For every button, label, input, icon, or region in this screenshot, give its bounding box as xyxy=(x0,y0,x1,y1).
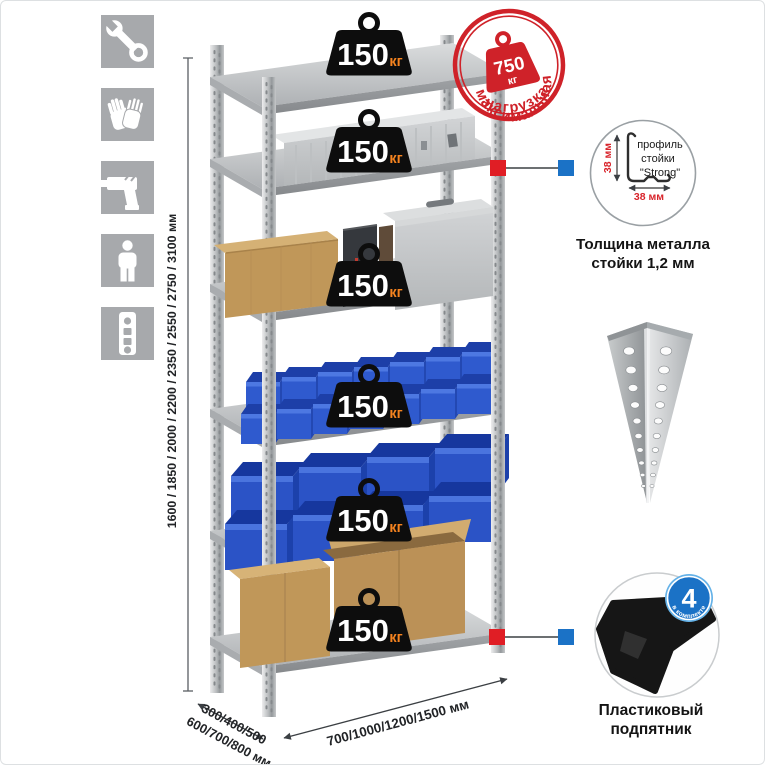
wrench-icon xyxy=(99,13,154,68)
height-dimension-label: 1600 / 1850 / 2000 / 2200 / 2350 / 2550 … xyxy=(165,214,179,529)
foot-caption-1: Пластиковый xyxy=(599,702,704,719)
person-icon xyxy=(101,234,154,287)
callout-marker-red-top xyxy=(490,160,506,176)
foot-caption-2: подпятник xyxy=(610,721,691,738)
width-dimension: 700/1000/1200/1500 мм xyxy=(284,679,507,749)
profile-callout xyxy=(490,160,574,176)
load-badge-1 xyxy=(326,15,412,76)
plastic-foot-detail: 4 в комплекте Пластиковый подпятник xyxy=(595,573,719,738)
profile-caption-1: Толщина металла xyxy=(576,236,711,253)
profile-vertical-dim: 38 мм xyxy=(602,143,614,173)
rack-post-back-left xyxy=(210,45,224,693)
kit-count-badge: 4 в комплекте xyxy=(665,574,713,622)
callout-marker-blue-bottom xyxy=(558,629,574,645)
profile-caption-2: стойки 1,2 мм xyxy=(591,255,694,272)
profile-label-1: профиль xyxy=(637,139,683,151)
foot-callout xyxy=(489,629,574,645)
rack-post-front-right xyxy=(491,61,505,653)
width-dimension-label: 700/1000/1200/1500 мм xyxy=(325,696,470,748)
level-icon xyxy=(101,307,154,360)
profile-label-3: "Strong" xyxy=(640,167,680,179)
drill-icon xyxy=(95,161,154,214)
corner-post-image xyxy=(607,322,693,503)
height-dimension: 1600 / 1850 / 2000 / 2200 / 2350 / 2550 … xyxy=(165,58,193,691)
infographic-canvas: 150 кг xyxy=(1,1,764,764)
tools-icon-column xyxy=(95,13,154,360)
kit-count-value: 4 xyxy=(681,584,696,614)
profile-label-2: стойки xyxy=(641,153,675,165)
callout-marker-red-bottom xyxy=(489,629,505,645)
depth-dimension: 300/400/500 600/700/800 мм xyxy=(184,701,274,764)
gloves-icon xyxy=(101,88,154,141)
profile-horizontal-dim: 38 мм xyxy=(634,191,664,203)
product-infographic: 150 кг xyxy=(0,0,765,765)
callout-marker-blue-top xyxy=(558,160,574,176)
post-profile-detail: 38 мм 38 мм профиль стойки "Strong" Толщ… xyxy=(576,121,711,273)
